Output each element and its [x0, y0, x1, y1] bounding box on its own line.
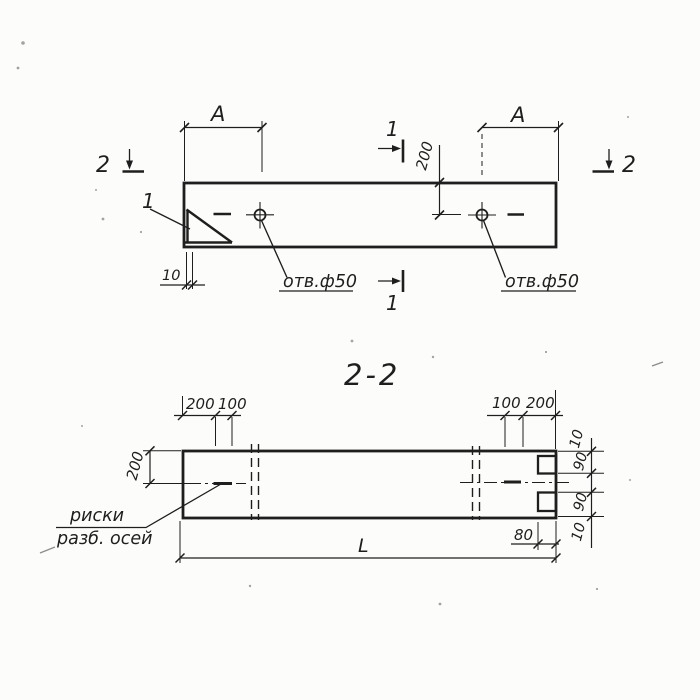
dim-a-left-label: A [209, 102, 225, 126]
extension-lines [143, 451, 197, 484]
extension-lines [185, 121, 263, 181]
dim-80: 80 [511, 522, 561, 550]
section-marker-2-right: 2 [593, 149, 637, 178]
drawing-sheet: 1 отв.ф50 отв.ф50 A [0, 0, 700, 700]
dim-90-lower-label: 90 [571, 491, 591, 513]
speck [102, 218, 105, 221]
marker-arrowhead [606, 161, 613, 170]
hole-left-centerlines [246, 202, 274, 229]
dim-200-plan-label: 200 [412, 140, 437, 172]
dim-200-left: 200 [123, 446, 197, 488]
dims-top-left: 200 100 [174, 395, 247, 446]
dim-length-label: L [358, 535, 369, 557]
dim-a-right-label: A [509, 103, 525, 127]
hole-right-centerlines [468, 202, 496, 229]
speck [545, 351, 547, 353]
dims-right-chain: 10 90 90 10 [558, 428, 604, 548]
notch-bottom [538, 493, 556, 512]
marker-arrowhead [126, 161, 133, 170]
section-2-marker-right-label: 2 [622, 153, 636, 178]
section-marker-2-left: 2 [96, 149, 144, 178]
speck [596, 588, 598, 590]
speck [81, 425, 83, 427]
dim-10-bottom-right-label: 10 [569, 521, 589, 543]
dim-10-plan: 10 [160, 252, 205, 290]
dim-80-label: 80 [514, 526, 533, 544]
section-view: 2-2 200 100 100 200 [56, 358, 604, 563]
beam-outline-section [183, 451, 556, 518]
dims-top-right: 100 200 [487, 390, 563, 449]
speck [439, 603, 442, 606]
dim-200-tr-label: 200 [526, 394, 555, 412]
section-marker-1-bottom: 1 [378, 270, 403, 315]
dim-10-top-right-label: 10 [567, 428, 587, 450]
notch-top [538, 456, 556, 474]
dim-200-left-label: 200 [123, 450, 148, 482]
marker-arrowhead [392, 278, 401, 285]
speck [351, 340, 354, 343]
axes-note: риски разб. осей [56, 484, 221, 549]
dim-200-tl-label: 200 [186, 395, 215, 413]
dim-10-plan-label: 10 [162, 268, 180, 284]
section-2-marker-left-label: 2 [96, 153, 110, 178]
dim-a-right: A [478, 103, 564, 181]
dim-100-tl-label: 100 [218, 395, 247, 413]
hidden-joint-lines [252, 444, 480, 520]
dim-100-tr-label: 100 [492, 394, 521, 412]
dim-a-left: A [180, 102, 267, 181]
detail-1-callout: 1 [142, 189, 155, 213]
stray-mark [40, 547, 55, 553]
speck [17, 67, 20, 70]
axes-note-line1: риски [69, 506, 124, 526]
beam-outline-plan [184, 183, 556, 247]
speck [140, 231, 142, 233]
dim-length: L [176, 521, 561, 563]
section-1-marker-bottom-label: 1 [386, 291, 399, 315]
speck [21, 41, 25, 45]
speck [432, 356, 434, 358]
hole-note-right: отв.ф50 [505, 272, 579, 292]
hole-note-left: отв.ф50 [283, 272, 357, 292]
stray-mark [652, 362, 663, 366]
section-marker-1-top: 1 [378, 117, 403, 163]
section-title: 2-2 [344, 358, 400, 392]
plan-view: 1 отв.ф50 отв.ф50 A [96, 102, 636, 315]
axis-scribe-marks [214, 482, 522, 484]
speck [95, 189, 97, 191]
dim-200-plan: 200 [412, 140, 461, 220]
speck [629, 479, 631, 481]
axes-note-line2: разб. осей [56, 529, 153, 549]
speck [627, 116, 629, 118]
drawing-canvas: 1 отв.ф50 отв.ф50 A [0, 0, 700, 700]
section-1-marker-top-label: 1 [386, 117, 399, 141]
marker-arrowhead [392, 145, 401, 152]
speck [249, 585, 251, 587]
